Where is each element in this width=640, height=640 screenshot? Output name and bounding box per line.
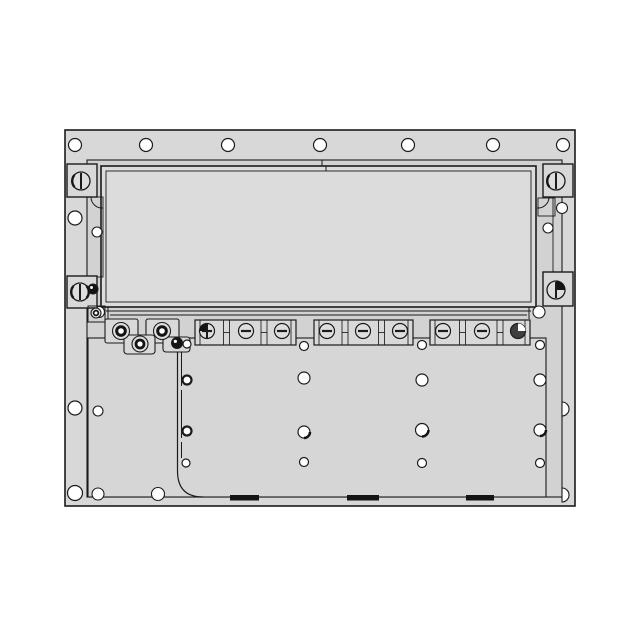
left-column-hole (92, 227, 102, 237)
right-column-hole (543, 223, 553, 233)
plate-hole (92, 488, 104, 500)
grid-hole (183, 427, 192, 436)
ring-terminal-screw (159, 328, 165, 334)
grid-hole (418, 459, 427, 468)
terminal-pin-highlight (174, 340, 177, 343)
bottom-tab (466, 495, 494, 501)
grid-hole (416, 374, 428, 386)
grid-hole (418, 341, 427, 350)
mounting-hole-left (68, 401, 82, 415)
bottom-tab (347, 495, 379, 501)
ring-terminal-screw (118, 328, 124, 334)
grid-hole (534, 374, 546, 386)
mounting-hole-left (68, 486, 83, 501)
mounting-hole-top (402, 139, 415, 152)
mounting-hole-top (487, 139, 500, 152)
grid-hole (300, 342, 309, 351)
ring-terminal-screw (137, 341, 142, 346)
plate-hole (152, 488, 165, 501)
cover-plate (101, 166, 536, 319)
mounting-hole-top (140, 139, 153, 152)
enclosure-assembly-drawing (0, 0, 640, 640)
clamp-pin-highlight (90, 286, 93, 289)
terminal-pin (172, 338, 183, 349)
right-margin-hole (557, 203, 568, 214)
grid-hole (536, 341, 545, 350)
grid-hole (298, 372, 310, 384)
grid-hole (300, 458, 309, 467)
lower-plate (88, 338, 546, 497)
cover (101, 166, 536, 307)
mounting-hole-top (222, 139, 235, 152)
plate-hole (93, 406, 103, 416)
mounting-hole-left (68, 211, 82, 225)
bottom-tab (230, 495, 259, 501)
grid-hole (183, 340, 191, 348)
grid-hole (183, 376, 192, 385)
technical-drawing-page (0, 0, 640, 640)
right-hinge-hole (533, 306, 545, 318)
grid-hole (536, 459, 545, 468)
mounting-hole-top (69, 139, 82, 152)
mounting-hole-top (557, 139, 570, 152)
foot-ring-screw (95, 312, 98, 315)
grid-hole (182, 459, 190, 467)
mounting-hole-top (314, 139, 327, 152)
